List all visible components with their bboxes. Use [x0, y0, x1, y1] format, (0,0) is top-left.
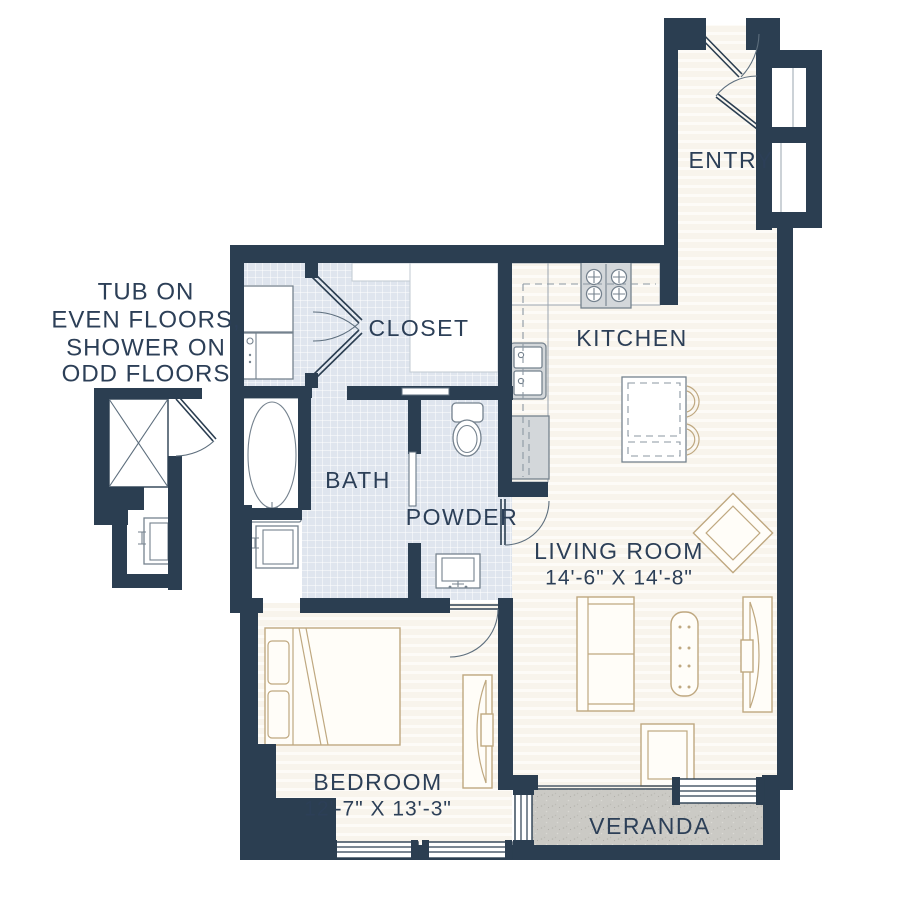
toilet: [452, 403, 483, 456]
living-window: [672, 777, 764, 805]
bedroom-dresser: [463, 675, 493, 788]
coat-closet-lower: [772, 143, 806, 213]
room-dims-bedroom: 12'-7" X 13'-3": [304, 798, 452, 821]
entry-floor: [678, 25, 758, 250]
refrigerator: [509, 416, 549, 479]
powder-pocket-door: [409, 452, 416, 506]
room-label-veranda: VERANDA: [589, 813, 711, 839]
coffee-table: [671, 612, 698, 696]
note-line-3: SHOWER ON: [66, 335, 226, 362]
bed: [265, 628, 400, 745]
room-label-powder: POWDER: [406, 504, 519, 530]
media-console: [741, 597, 772, 712]
room-label-bath: BATH: [325, 467, 391, 493]
powder-sink: [436, 554, 480, 588]
floor-plan-drawing: TUB ON EVEN FLOORS, SHOWER ON ODD FLOORS…: [0, 0, 900, 900]
floor-plan-page: TUB ON EVEN FLOORS, SHOWER ON ODD FLOORS…: [0, 0, 900, 900]
alt-shower-door: [176, 397, 216, 456]
room-dims-living: 14'-6" X 14'-8": [545, 567, 693, 590]
kitchen-sink: [510, 343, 546, 399]
closet-pocket-door: [402, 388, 449, 395]
note-line-4: ODD FLOORS: [62, 361, 231, 388]
bedroom-window-left: [330, 840, 418, 860]
room-label-living: LIVING ROOM: [534, 538, 704, 564]
washer-dryer: [243, 286, 293, 379]
alt-sink: [138, 518, 172, 564]
room-label-kitchen: KITCHEN: [576, 325, 687, 351]
bathtub: [243, 398, 301, 522]
kitchen-island: [622, 377, 686, 462]
room-label-entry: ENTRY: [688, 147, 773, 173]
side-window: [513, 788, 534, 847]
vanity-sink: [251, 526, 298, 568]
note-line-2: EVEN FLOORS,: [51, 307, 240, 334]
stove: [581, 262, 631, 308]
lounge-chair: [641, 724, 694, 786]
bedroom-window-right: [422, 840, 512, 860]
coat-closet-upper: [772, 66, 806, 128]
room-label-bedroom: BEDROOM: [313, 769, 442, 795]
shower-stall: [109, 399, 168, 487]
note-line-1: TUB ON: [98, 279, 195, 306]
sofa: [577, 597, 634, 711]
room-label-closet: CLOSET: [368, 315, 469, 341]
